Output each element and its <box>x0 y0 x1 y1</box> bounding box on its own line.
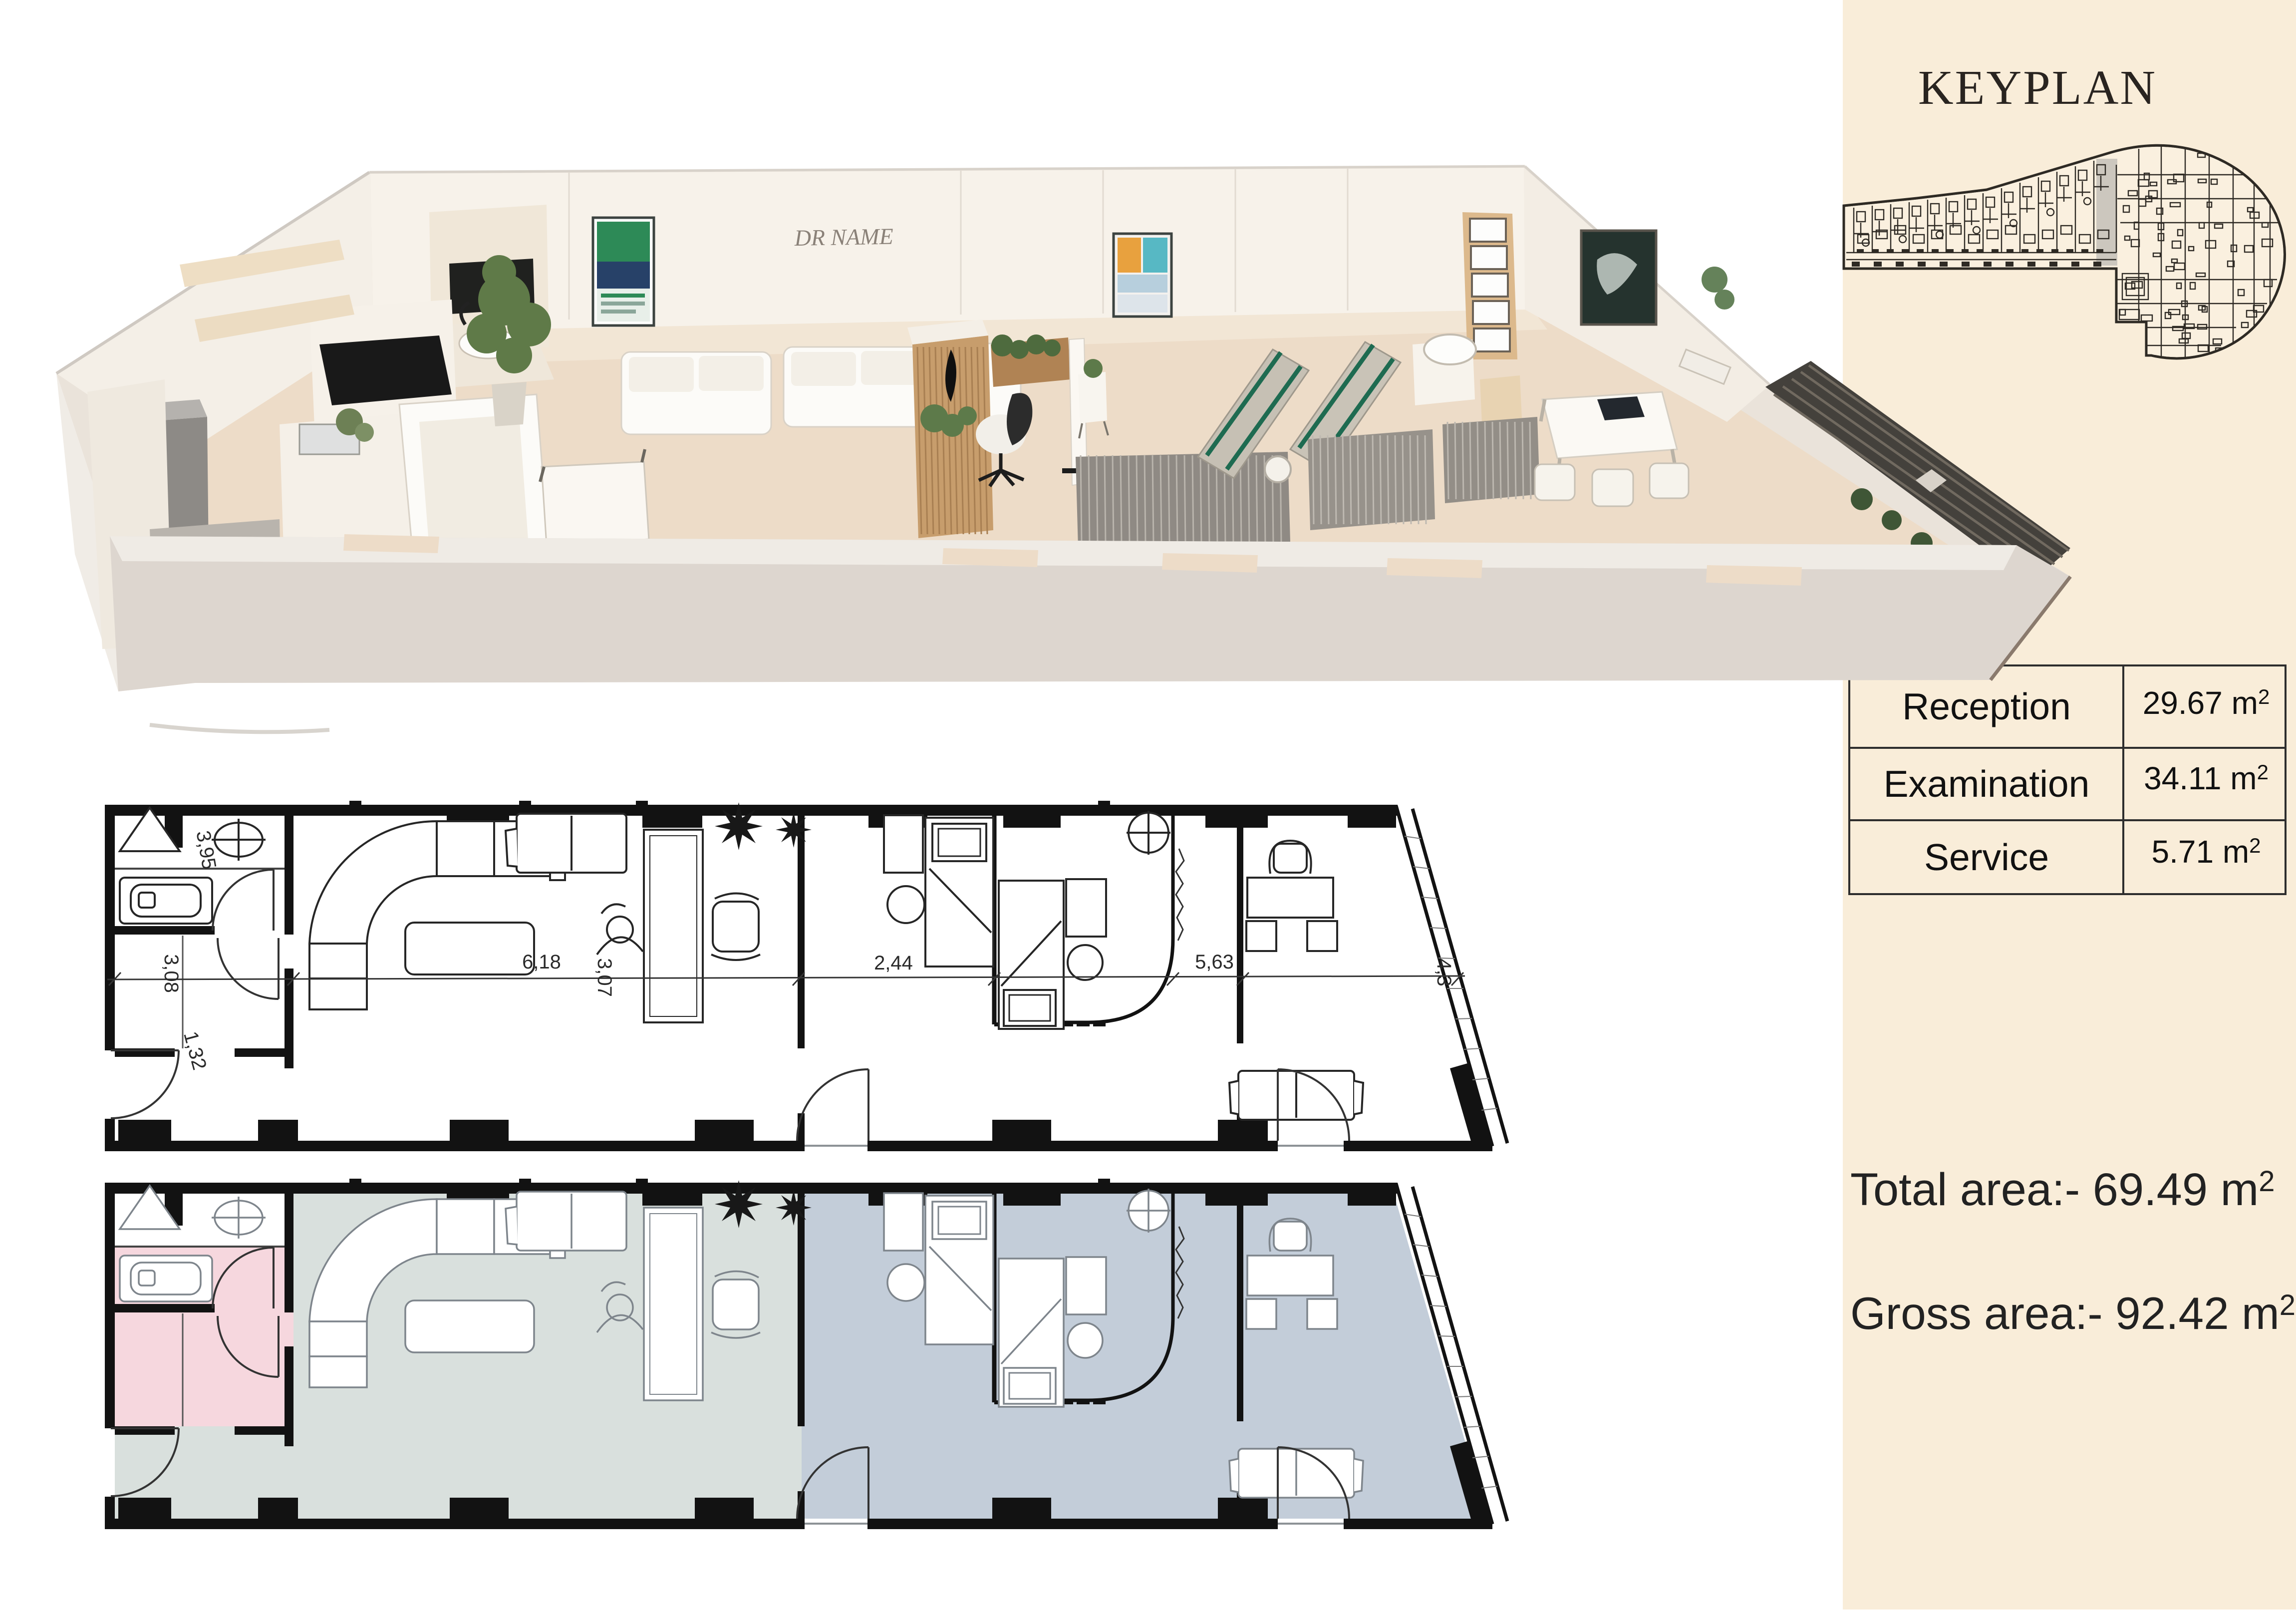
svg-text:29.67 m2: 29.67 m2 <box>2143 685 2270 721</box>
svg-text:3,07: 3,07 <box>593 958 615 997</box>
svg-text:3,08: 3,08 <box>160 954 182 993</box>
svg-text:Reception: Reception <box>1902 685 2071 727</box>
svg-text:DR NAME: DR NAME <box>794 224 893 251</box>
svg-text:34.11 m2: 34.11 m2 <box>2144 760 2269 796</box>
svg-text:5.71 m2: 5.71 m2 <box>2151 834 2261 870</box>
svg-text:4,3: 4,3 <box>1433 959 1455 986</box>
svg-text:1,32: 1,32 <box>179 1029 211 1072</box>
svg-text:6,18: 6,18 <box>522 951 561 973</box>
svg-text:2,44: 2,44 <box>874 952 913 974</box>
svg-text:Gross area:- 92.42 m2: Gross area:- 92.42 m2 <box>1850 1289 2296 1339</box>
svg-text:Total area:- 69.49 m2: Total area:- 69.49 m2 <box>1850 1164 2275 1215</box>
svg-text:KEYPLAN: KEYPLAN <box>1918 61 2157 115</box>
svg-text:5,63: 5,63 <box>1195 951 1234 973</box>
svg-text:Service: Service <box>1924 836 2049 878</box>
svg-text:Examination: Examination <box>1884 763 2090 805</box>
